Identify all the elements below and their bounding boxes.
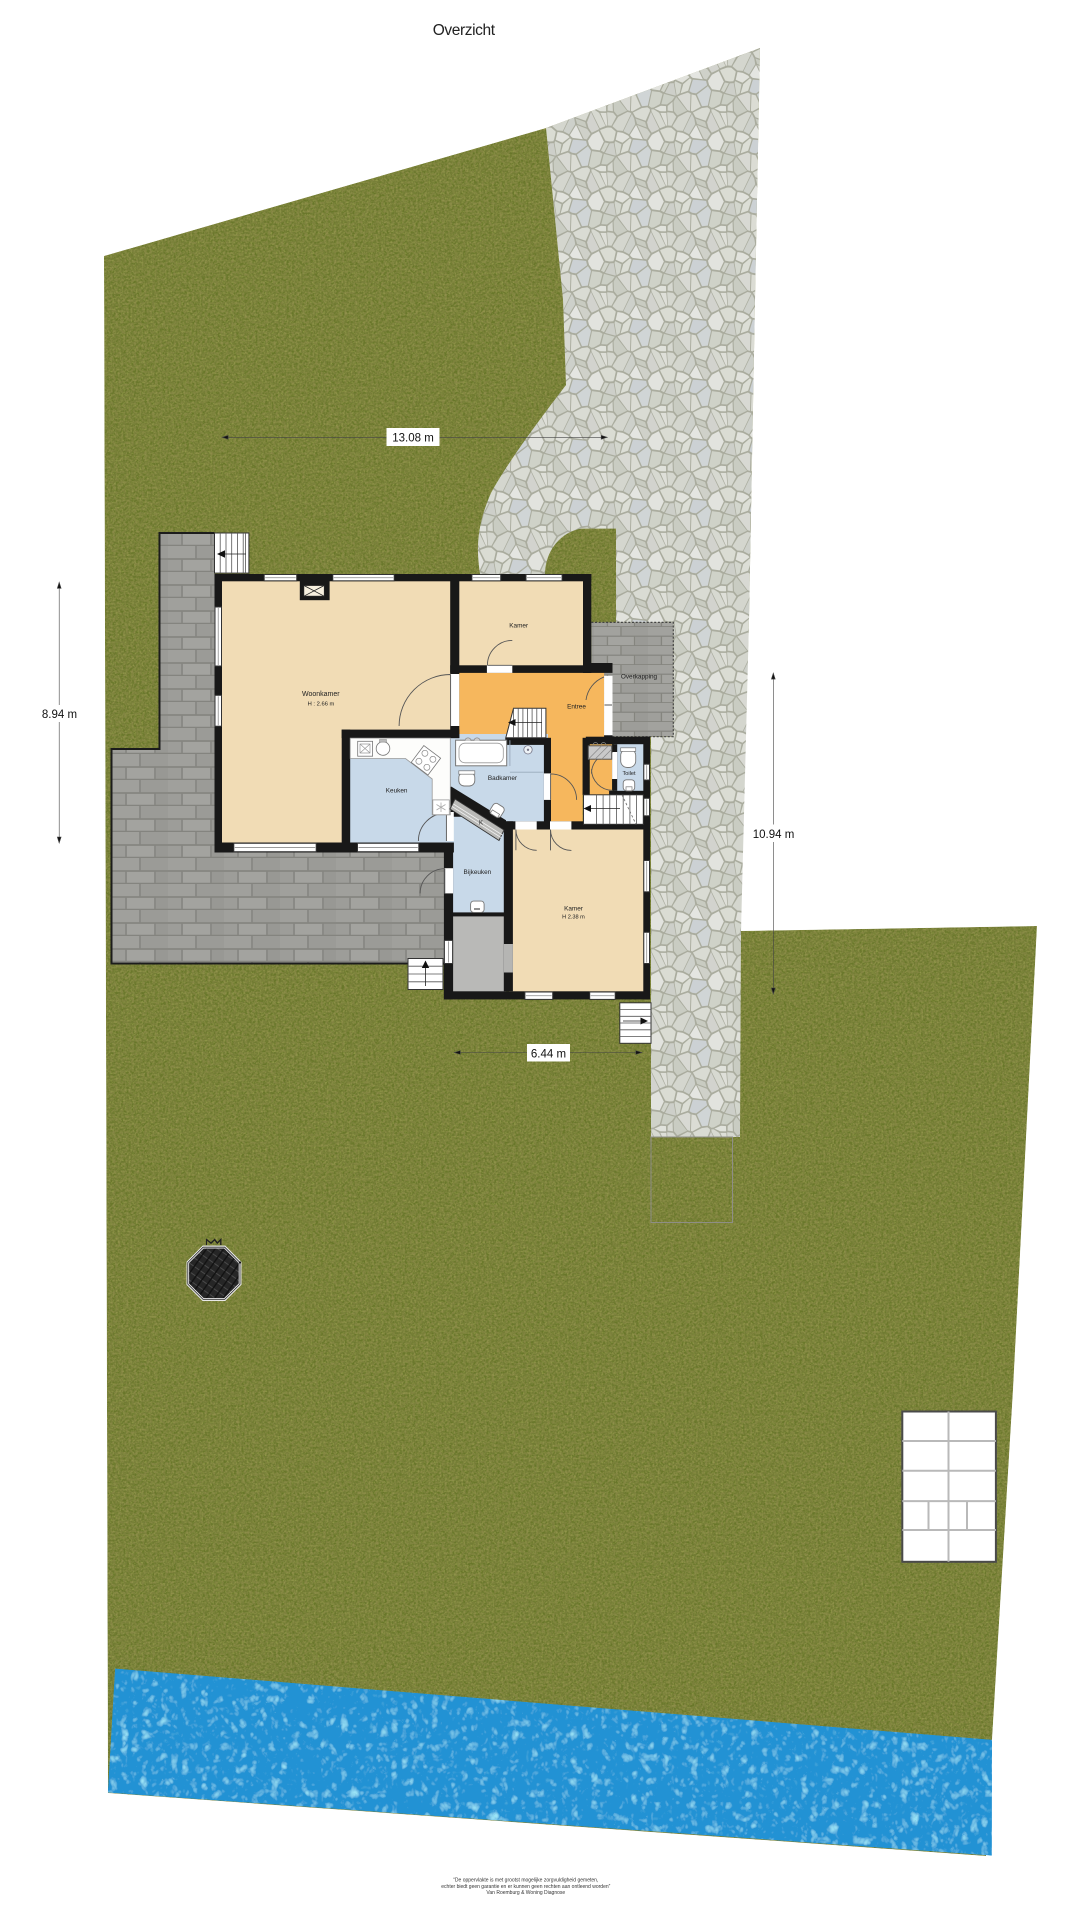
- svg-text:Keuken: Keuken: [386, 788, 408, 795]
- svg-text:Overzicht: Overzicht: [433, 22, 496, 39]
- svg-text:Badkamer: Badkamer: [488, 775, 518, 782]
- svg-text:H : 2.66 m: H : 2.66 m: [308, 702, 335, 708]
- svg-text:6.44 m: 6.44 m: [531, 1048, 566, 1060]
- svg-text:Bijkeuken: Bijkeuken: [464, 869, 492, 876]
- svg-text:8.94 m: 8.94 m: [42, 709, 77, 721]
- svg-text:K: K: [479, 821, 483, 827]
- svg-text:Entree: Entree: [567, 704, 586, 711]
- svg-text:echter biedt geen garantie en: echter biedt geen garantie en er kunnen …: [441, 1884, 610, 1890]
- svg-text:“De oppervlakte is met grootst: “De oppervlakte is met grootst mogelijke…: [453, 1878, 598, 1884]
- svg-text:Overkapping: Overkapping: [621, 674, 658, 681]
- svg-text:13.08 m: 13.08 m: [392, 432, 434, 444]
- svg-text:10.94 m: 10.94 m: [753, 829, 795, 841]
- svg-text:H 2.38 m: H 2.38 m: [562, 915, 585, 921]
- svg-text:Van Roemburg & Woning Diagnose: Van Roemburg & Woning Diagnose: [486, 1890, 565, 1896]
- svg-text:Woonkamer: Woonkamer: [302, 691, 340, 698]
- svg-text:Kamer: Kamer: [564, 906, 584, 913]
- svg-text:Toilet: Toilet: [622, 771, 636, 777]
- svg-text:Kamer: Kamer: [509, 623, 529, 630]
